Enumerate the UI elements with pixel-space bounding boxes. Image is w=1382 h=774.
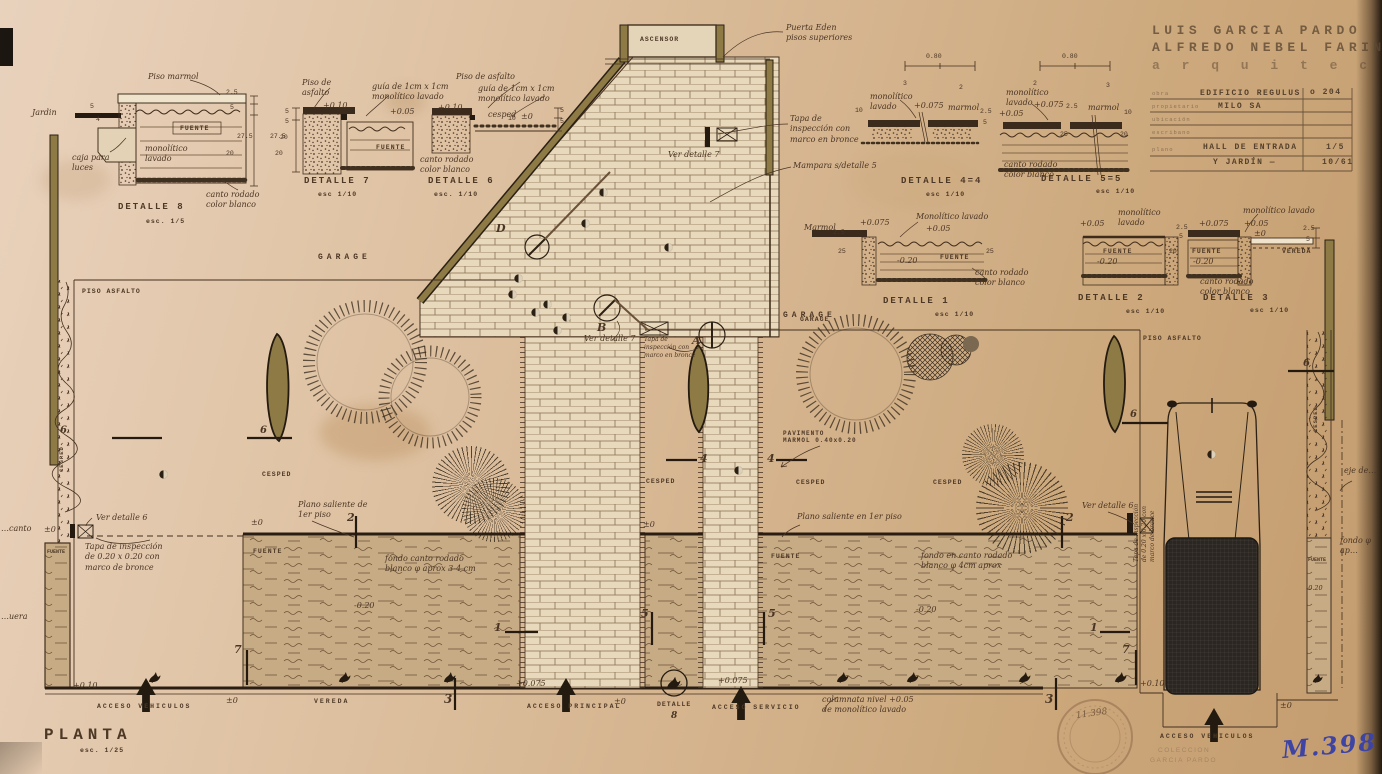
dim-55-3: 3 (1106, 82, 1110, 89)
dim-d7-20: 20 (280, 134, 288, 141)
titleblock-date: 10/61 (1322, 158, 1354, 167)
detail-55-scale: esc 1/10 (1096, 188, 1135, 195)
architectural-plan-sheet: LUIS GARCIA PARDO ALFREDO NEBEL FARINI a… (0, 0, 1382, 774)
dim-d55-10: 10 (1124, 109, 1132, 116)
label-cesped-garden-left: CESPED (262, 471, 291, 478)
detail-55-title: DETALLE 5=5 (1041, 174, 1122, 184)
dim-d44-5: 5 (983, 119, 987, 126)
dim-d8-20b: 20 (275, 150, 283, 157)
titleblock-label-obra: obra (1152, 90, 1169, 97)
label-vereda-bottom: VEREDA (314, 698, 349, 705)
dim-d44-25: 2.5 (980, 108, 992, 115)
dim-d1-25: 2.5 (833, 229, 845, 236)
label-fuente-strip-right: FUENTE (1308, 557, 1326, 563)
note-monolitico-d8: monolítico lavado (145, 144, 188, 165)
level-bottom-zero-left: ±0 (226, 696, 238, 706)
level-d55-0075: +0.075 (1034, 100, 1064, 110)
level-principal-0075: +0.075 (516, 679, 546, 689)
level-d1-005: +0.05 (926, 224, 951, 234)
level-right-zero: ±0 (1280, 701, 1292, 711)
label-fuente-d8: FUENTE (180, 125, 209, 132)
level-d3-m020: -0.20 (1193, 257, 1214, 267)
note-saliente-left: Plano saliente de 1er piso (298, 500, 367, 521)
level-walk-zero: ±0 (643, 520, 655, 530)
note-mono-d2: monolítico lavado (1118, 208, 1161, 229)
note-tapa-020-left: Tapa de inspección de 0.20 x 0.20 con ma… (85, 542, 162, 573)
architect-name-1: LUIS GARCIA PARDO (1152, 23, 1361, 38)
level-garden-left-zero: ±0 (251, 518, 263, 528)
titleblock-label-propietario: propietario (1152, 103, 1199, 110)
label-acceso-vehiculos-right: ACCESO VEHICULOS (1160, 733, 1254, 740)
stamp-collection-line1: COLECCION (1158, 747, 1210, 754)
level-fountain-left: -0.20 (354, 601, 375, 611)
planter-blob-left (267, 334, 289, 441)
planter-blob-right (1104, 336, 1125, 432)
dim-080-right: 0.80 (1062, 53, 1078, 60)
marker-6-b: 6 (260, 424, 267, 437)
label-cesped-right-a: CESPED (796, 479, 825, 486)
level-d3-zero: ±0 (1254, 229, 1266, 239)
titleblock-label-escribano: escribano (1152, 129, 1191, 136)
level-bottom-p010-left: +0.10 (73, 681, 98, 691)
note-ver-detalle6-left: Ver detalle 6 (96, 513, 147, 523)
dim-d6-5: 5 (560, 107, 564, 114)
note-marmol-d1: Marmol (804, 223, 836, 233)
dim-44-2: 2 (959, 84, 963, 91)
note-caja-luces: caja para luces (72, 153, 110, 174)
titleblock-value-plano-2: Y JARDÍN — (1213, 158, 1276, 167)
note-canto-d1: canto rodado color blanco (975, 268, 1028, 289)
marker-4-b: 4 (767, 452, 775, 466)
note-canto-d7: canto rodado color blanco (420, 155, 473, 176)
dim-d7-5b: 5 (285, 118, 289, 125)
marker-7-a: 7 (234, 643, 242, 657)
detail-6-title: DETALLE 6 (428, 176, 495, 186)
detail-3-scale: esc 1/10 (1250, 307, 1289, 314)
label-ascensor: ASCENSOR (640, 36, 679, 43)
marker-2-a: 2 (347, 511, 355, 525)
label-piso-asfalto-right: PISO ASFALTO (1143, 335, 1202, 342)
level-fountain-strip-right: -0.20 (1306, 584, 1323, 592)
level-d3-005: +0.05 (1244, 219, 1269, 229)
note-piso-asfalto-d7: Piso de asfalto (302, 78, 331, 99)
marker-3-b: 3 (1045, 692, 1053, 708)
dim-d7-5: 5 (285, 108, 289, 115)
dim-d8-4: 4 (96, 116, 100, 123)
level-right-p010: +0.10 (1140, 679, 1165, 689)
dim-d2-25: 2.5 (1176, 224, 1188, 231)
trees-crosshatch (907, 334, 979, 380)
level-d3-0075: +0.075 (1199, 219, 1229, 229)
detail-2-title: DETALLE 2 (1078, 293, 1145, 303)
dim-d3-5: 5 (1306, 236, 1310, 243)
detail-7-scale: esc 1/10 (318, 191, 357, 198)
note-tapa-a: Tapa de inspección con marco en bronce (644, 336, 695, 359)
titleblock-label-ubicacion: ubicación (1152, 116, 1191, 123)
dim-d8-20: 20 (226, 150, 234, 157)
note-mampara: Mampara s/detalle 5 (793, 161, 877, 171)
architect-profession: a r q u i t e c t o s (1152, 58, 1382, 73)
note-mono-d3: monolítico lavado (1243, 206, 1315, 216)
note-mono-d1: Monolítico lavado (916, 212, 988, 222)
detail-3-title: DETALLE 3 (1203, 293, 1270, 303)
dim-d6-5b: 5 (560, 118, 564, 125)
dim-d55-25: 2.5 (1066, 103, 1078, 110)
dim-d44-10: 10 (855, 107, 863, 114)
dim-d2-20: 20 (1169, 248, 1177, 255)
dim-d55-20: 20 (1120, 131, 1128, 138)
label-detalle-ref: DETALLE (657, 701, 691, 708)
dim-080-left: 0.80 (926, 53, 942, 60)
note-marmol-d55: marmol (1088, 103, 1119, 113)
architect-name-2: ALFREDO NEBEL FARINI (1152, 40, 1382, 55)
detail-1-scale: esc 1/10 (935, 311, 974, 318)
note-fondo-left: fondo canto rodado blanco φ aprox 3-4 cm (385, 554, 476, 575)
label-cesped-strip-right: CESPED (1312, 406, 1319, 432)
edge-wood-left (50, 135, 58, 465)
note-piso-marmol: Piso marmol (148, 72, 199, 82)
note-canto-d8: canto rodado color blanco (206, 190, 259, 211)
plan-scale: esc. 1/25 (80, 747, 124, 754)
dim-d6-10: 10 (508, 115, 516, 122)
note-fondo-right: fondo en canto rodado blanco φ 4cm aprox (921, 551, 1012, 572)
marker-6-d: 6 (1303, 357, 1310, 370)
note-ver-detalle6-right: Ver detalle 6 (1082, 501, 1133, 511)
level-d44-0075: +0.075 (914, 101, 944, 111)
level-d6-zero: ±0 (521, 112, 533, 122)
level-d7-005: +0.05 (390, 107, 415, 117)
dim-d2-5: 5 (1179, 233, 1183, 240)
detail-1-title: DETALLE 1 (883, 296, 950, 306)
note-edge-uera: …uera (1, 612, 27, 622)
detail-44-scale: esc 1/10 (926, 191, 965, 198)
label-fuente-d2: FUENTE (1103, 248, 1132, 255)
label-fuente-d3: FUENTE (1192, 248, 1221, 255)
label-cesped-strip-left: CESPED (58, 446, 65, 472)
label-fuente-d7: FUENTE (376, 144, 405, 151)
note-edge-fondo: fondo φ ap… (1340, 536, 1382, 557)
dim-d1-25a: 25 (838, 248, 846, 255)
note-marmol-d44: marmol (948, 103, 979, 113)
level-strip-left-zero: ±0 (44, 525, 56, 535)
marker-1-b: 1 (1090, 621, 1098, 635)
note-ver-detalle7-b: Ver detalle 7 (584, 334, 635, 344)
note-piso-asfalto-d6: Piso de asfalto (456, 72, 515, 82)
dim-d8-5: 5 (230, 104, 234, 111)
label-cesped-right-b: CESPED (933, 479, 962, 486)
titleblock-label-plano: plano (1152, 146, 1174, 153)
label-garage-right: GARAGE (783, 311, 836, 320)
detail-8-scale: esc. 1/5 (146, 218, 185, 225)
stamp-collection-line2: GARCIA PARDO (1150, 757, 1217, 764)
note-puerta-eden: Puerta Eden pisos superiores (786, 23, 852, 44)
label-detalle-ref-num: 8 (671, 711, 677, 723)
marker-1-a: 1 (494, 621, 502, 635)
label-vereda-d3: VEREDA (1282, 248, 1311, 255)
level-d6-010: +0.10 (438, 103, 463, 113)
marker-4-a: 4 (700, 452, 708, 466)
dim-d8-25: 2.5 (226, 89, 238, 96)
walkway-principal (520, 337, 645, 688)
marker-3-a: 3 (444, 692, 452, 708)
hedge-circle-right (802, 320, 910, 428)
marker-5-b: 5 (768, 607, 776, 621)
note-columnata: columnata nivel +0.05 de monolítico lava… (822, 695, 914, 716)
label-fuente-d1: FUENTE (940, 254, 969, 261)
dim-d8-275: 27.5 (237, 133, 253, 140)
detail-2-scale: esc 1/10 (1126, 308, 1165, 315)
label-acceso-vehiculos-left: ACCESO VEHICULOS (97, 703, 191, 710)
dim-44-3: 3 (903, 80, 907, 87)
note-tapa-020-right: Tapa de inspección de 0.20 x 0.20 con ma… (1133, 504, 1156, 562)
label-acceso-servicio: ACCESO SERVICIO (712, 704, 801, 711)
fountain-strip-left (45, 543, 70, 688)
label-fuente-left: FUENTE (253, 548, 282, 555)
titleblock-value-propietario: MILO SA (1218, 102, 1262, 111)
plan-title: PLANTA (44, 726, 132, 744)
marker-7-b: 7 (1122, 643, 1130, 657)
level-fountain-right: -0.20 (916, 605, 937, 615)
titleblock-value-obra: EDIFICIO REGULUS (1200, 89, 1301, 98)
label-fuente-strip-left: FUENTE (47, 549, 65, 555)
dim-d3-25: 2.5 (1303, 225, 1315, 232)
dim-55-2: 2 (1033, 80, 1037, 87)
dim-d8-5b: 5 (90, 103, 94, 110)
titleblock-number: o 204 (1310, 88, 1342, 97)
titleblock-scale-1: 1/5 (1326, 143, 1345, 152)
label-pavimento: PAVIMENTO MARMOL 0.40x0.20 (783, 430, 857, 444)
note-guia-d7: guía de 1cm x 1cm monolítico lavado (372, 82, 448, 103)
label-garage-left: GARAGE (318, 253, 371, 262)
marker-letter-d: D (496, 222, 506, 236)
note-ver-detalle7-hall: Ver detalle 7 (668, 150, 719, 160)
level-d1-m020: -0.20 (897, 256, 918, 266)
note-edge-eje: eje de… (1344, 466, 1376, 476)
fountain-left (243, 535, 520, 688)
marker-6-a: 6 (60, 424, 67, 437)
marker-letter-b: B (597, 321, 606, 335)
detail-8-title: DETALLE 8 (118, 202, 185, 212)
level-d7-010: +0.10 (323, 101, 348, 111)
marker-5-a: 5 (641, 607, 649, 621)
note-jardin: Jardin (32, 108, 57, 118)
note-guia-d6: guía de 1cm x 1cm monolítico lavado (478, 84, 554, 105)
level-d1-0075: +0.075 (860, 218, 890, 228)
note-saliente-right: Plano saliente en 1er piso (797, 512, 902, 522)
label-acceso-principal: ACCESO PRINCIPAL (527, 703, 621, 710)
dim-d1-25b: 25 (986, 248, 994, 255)
note-mono-d44: monolítico lavado (870, 92, 913, 113)
marker-6-c: 6 (1130, 408, 1137, 421)
level-d2-m020: -0.20 (1097, 257, 1118, 267)
label-piso-asfalto-left: PISO ASFALTO (82, 288, 141, 295)
level-d2-005: +0.05 (1080, 219, 1105, 229)
level-servicio-0075: +0.075 (718, 676, 748, 686)
note-edge-canto: …canto (1, 524, 31, 534)
dim-d55-25b: 25 (1060, 131, 1068, 138)
car (1164, 398, 1260, 694)
detail-6-scale: esc. 1/10 (434, 191, 478, 198)
label-fuente-right: FUENTE (771, 553, 800, 560)
level-d55-005: +0.05 (999, 109, 1024, 119)
detail-44-title: DETALLE 4=4 (901, 176, 982, 186)
detail-7-title: DETALLE 7 (304, 176, 371, 186)
label-cesped-center: CESPED (646, 478, 675, 485)
marker-letter-a: A (692, 334, 701, 348)
note-tapa-hall: Tapa de inspección con marco en bronce (790, 114, 859, 145)
titleblock-value-plano-1: HALL DE ENTRADA (1203, 143, 1298, 152)
